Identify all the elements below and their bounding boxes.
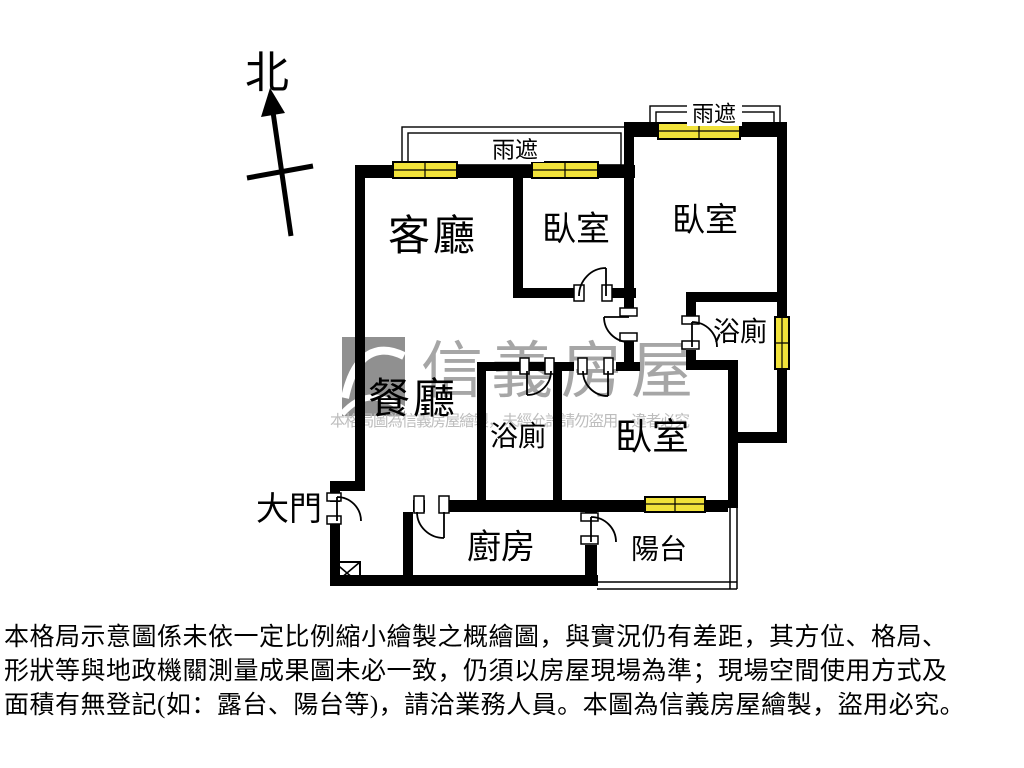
label-bathroom-lower: 浴廁 bbox=[490, 421, 546, 453]
jamb bbox=[581, 536, 598, 544]
disclaimer-line-2: 形狀等與地政機關測量成果圖未必一致，仍須以房屋現場為準；現場空間使用方式及 bbox=[4, 655, 1022, 689]
wall-bath1-left-a bbox=[686, 292, 696, 317]
jamb bbox=[545, 358, 554, 374]
window-living bbox=[393, 162, 457, 178]
label-main-entrance: 大門 bbox=[256, 491, 322, 528]
wall-bottom bbox=[330, 575, 598, 586]
wall-left bbox=[355, 165, 365, 491]
wall-bedroom1-bottom-a bbox=[513, 288, 579, 298]
label-kitchen: 廚房 bbox=[467, 529, 535, 567]
wall-right-connector bbox=[728, 432, 787, 443]
jamb bbox=[682, 341, 699, 349]
jamb bbox=[620, 308, 637, 316]
wall-bath2-right bbox=[553, 362, 562, 512]
jamb bbox=[327, 516, 341, 524]
wall-right bbox=[777, 122, 787, 443]
compass-group: 北 bbox=[245, 49, 313, 237]
floorplan-page: 信義房屋 本格局圖為信義房屋繪製，未經允許請勿盜用，違者必究 bbox=[0, 0, 1024, 768]
window-bedroom1 bbox=[532, 162, 598, 178]
label-bedroom-top-right: 臥室 bbox=[672, 202, 738, 239]
label-balcony: 陽台 bbox=[631, 534, 687, 566]
wall-vestibule bbox=[624, 341, 634, 371]
north-label: 北 bbox=[245, 49, 289, 98]
jamb bbox=[602, 285, 612, 301]
disclaimer-line-3: 面積有無登記(如：露台、陽台等)，請洽業務人員。本圖為信義房屋繪製，盜用必究。 bbox=[4, 689, 1022, 723]
wall-bedroom2-left bbox=[624, 132, 634, 313]
jamb bbox=[439, 496, 449, 513]
door-kitchen bbox=[417, 512, 444, 538]
wall-kitchen-left bbox=[403, 512, 413, 578]
label-dining-room: 餐廳 bbox=[368, 376, 458, 423]
wall-bedroom2-bottom bbox=[686, 292, 787, 302]
disclaimer-block: 本格局示意圖係未依一定比例縮小繪製之概繪圖，與實況仍有差距，其方位、格局、 形狀… bbox=[4, 621, 1022, 723]
canopy-right-label: 雨遮 bbox=[692, 102, 736, 127]
label-living-room: 客廳 bbox=[388, 213, 478, 260]
window-bedroom3 bbox=[645, 497, 705, 512]
wall-bath2-left bbox=[477, 362, 486, 512]
jamb bbox=[414, 496, 424, 513]
wall-balcony-separator-b bbox=[585, 545, 597, 577]
window-bathroom-side bbox=[775, 317, 789, 369]
label-bedroom-bottom: 臥室 bbox=[615, 417, 689, 459]
canopy-left-label: 雨遮 bbox=[492, 138, 538, 163]
label-bedroom-top-middle: 臥室 bbox=[542, 211, 610, 249]
label-bathroom-upper: 浴廁 bbox=[713, 317, 767, 347]
disclaimer-line-1: 本格局示意圖係未依一定比例縮小繪製之概繪圖，與實況仍有差距，其方位、格局、 bbox=[4, 621, 1022, 655]
wall-living-bedroom1-divider bbox=[513, 165, 523, 298]
jamb bbox=[620, 333, 637, 341]
